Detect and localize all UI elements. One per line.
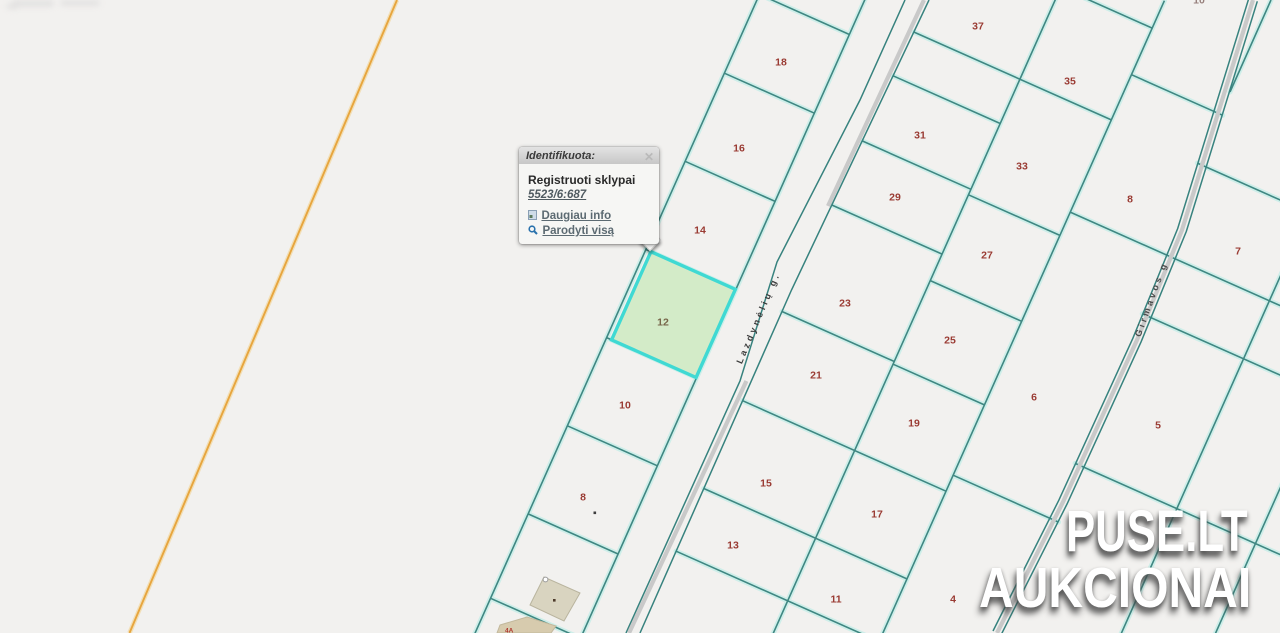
svg-text:19: 19 [908, 418, 920, 430]
svg-text:11: 11 [830, 594, 841, 606]
svg-text:18: 18 [775, 57, 787, 69]
svg-text:6: 6 [1031, 392, 1037, 404]
svg-text:16: 16 [733, 143, 745, 155]
svg-text:10: 10 [619, 400, 631, 412]
svg-text:14: 14 [694, 225, 706, 237]
svg-text:4: 4 [950, 594, 956, 606]
svg-text:17: 17 [871, 509, 883, 521]
svg-text:23: 23 [839, 298, 851, 310]
svg-text:5: 5 [1155, 420, 1161, 432]
svg-text:33: 33 [1016, 161, 1028, 173]
svg-text:8: 8 [580, 492, 586, 504]
svg-text:27: 27 [981, 250, 993, 262]
svg-text:Girmavos g: Girmavos g [1133, 260, 1170, 338]
svg-text:13: 13 [727, 540, 739, 552]
svg-text:37: 37 [972, 21, 984, 33]
svg-text:4A: 4A [505, 628, 514, 633]
svg-text:10: 10 [1193, 0, 1205, 7]
svg-text:15: 15 [760, 478, 772, 490]
svg-text:Lazdynėlių g.: Lazdynėlių g. [734, 270, 782, 365]
svg-text:29: 29 [889, 192, 901, 204]
svg-text:8: 8 [1127, 194, 1133, 206]
svg-text:21: 21 [810, 370, 822, 382]
svg-text:25: 25 [944, 335, 956, 347]
svg-text:12: 12 [657, 317, 669, 329]
svg-text:31: 31 [914, 130, 926, 142]
svg-text:35: 35 [1064, 76, 1076, 88]
svg-text:7: 7 [1235, 246, 1241, 258]
